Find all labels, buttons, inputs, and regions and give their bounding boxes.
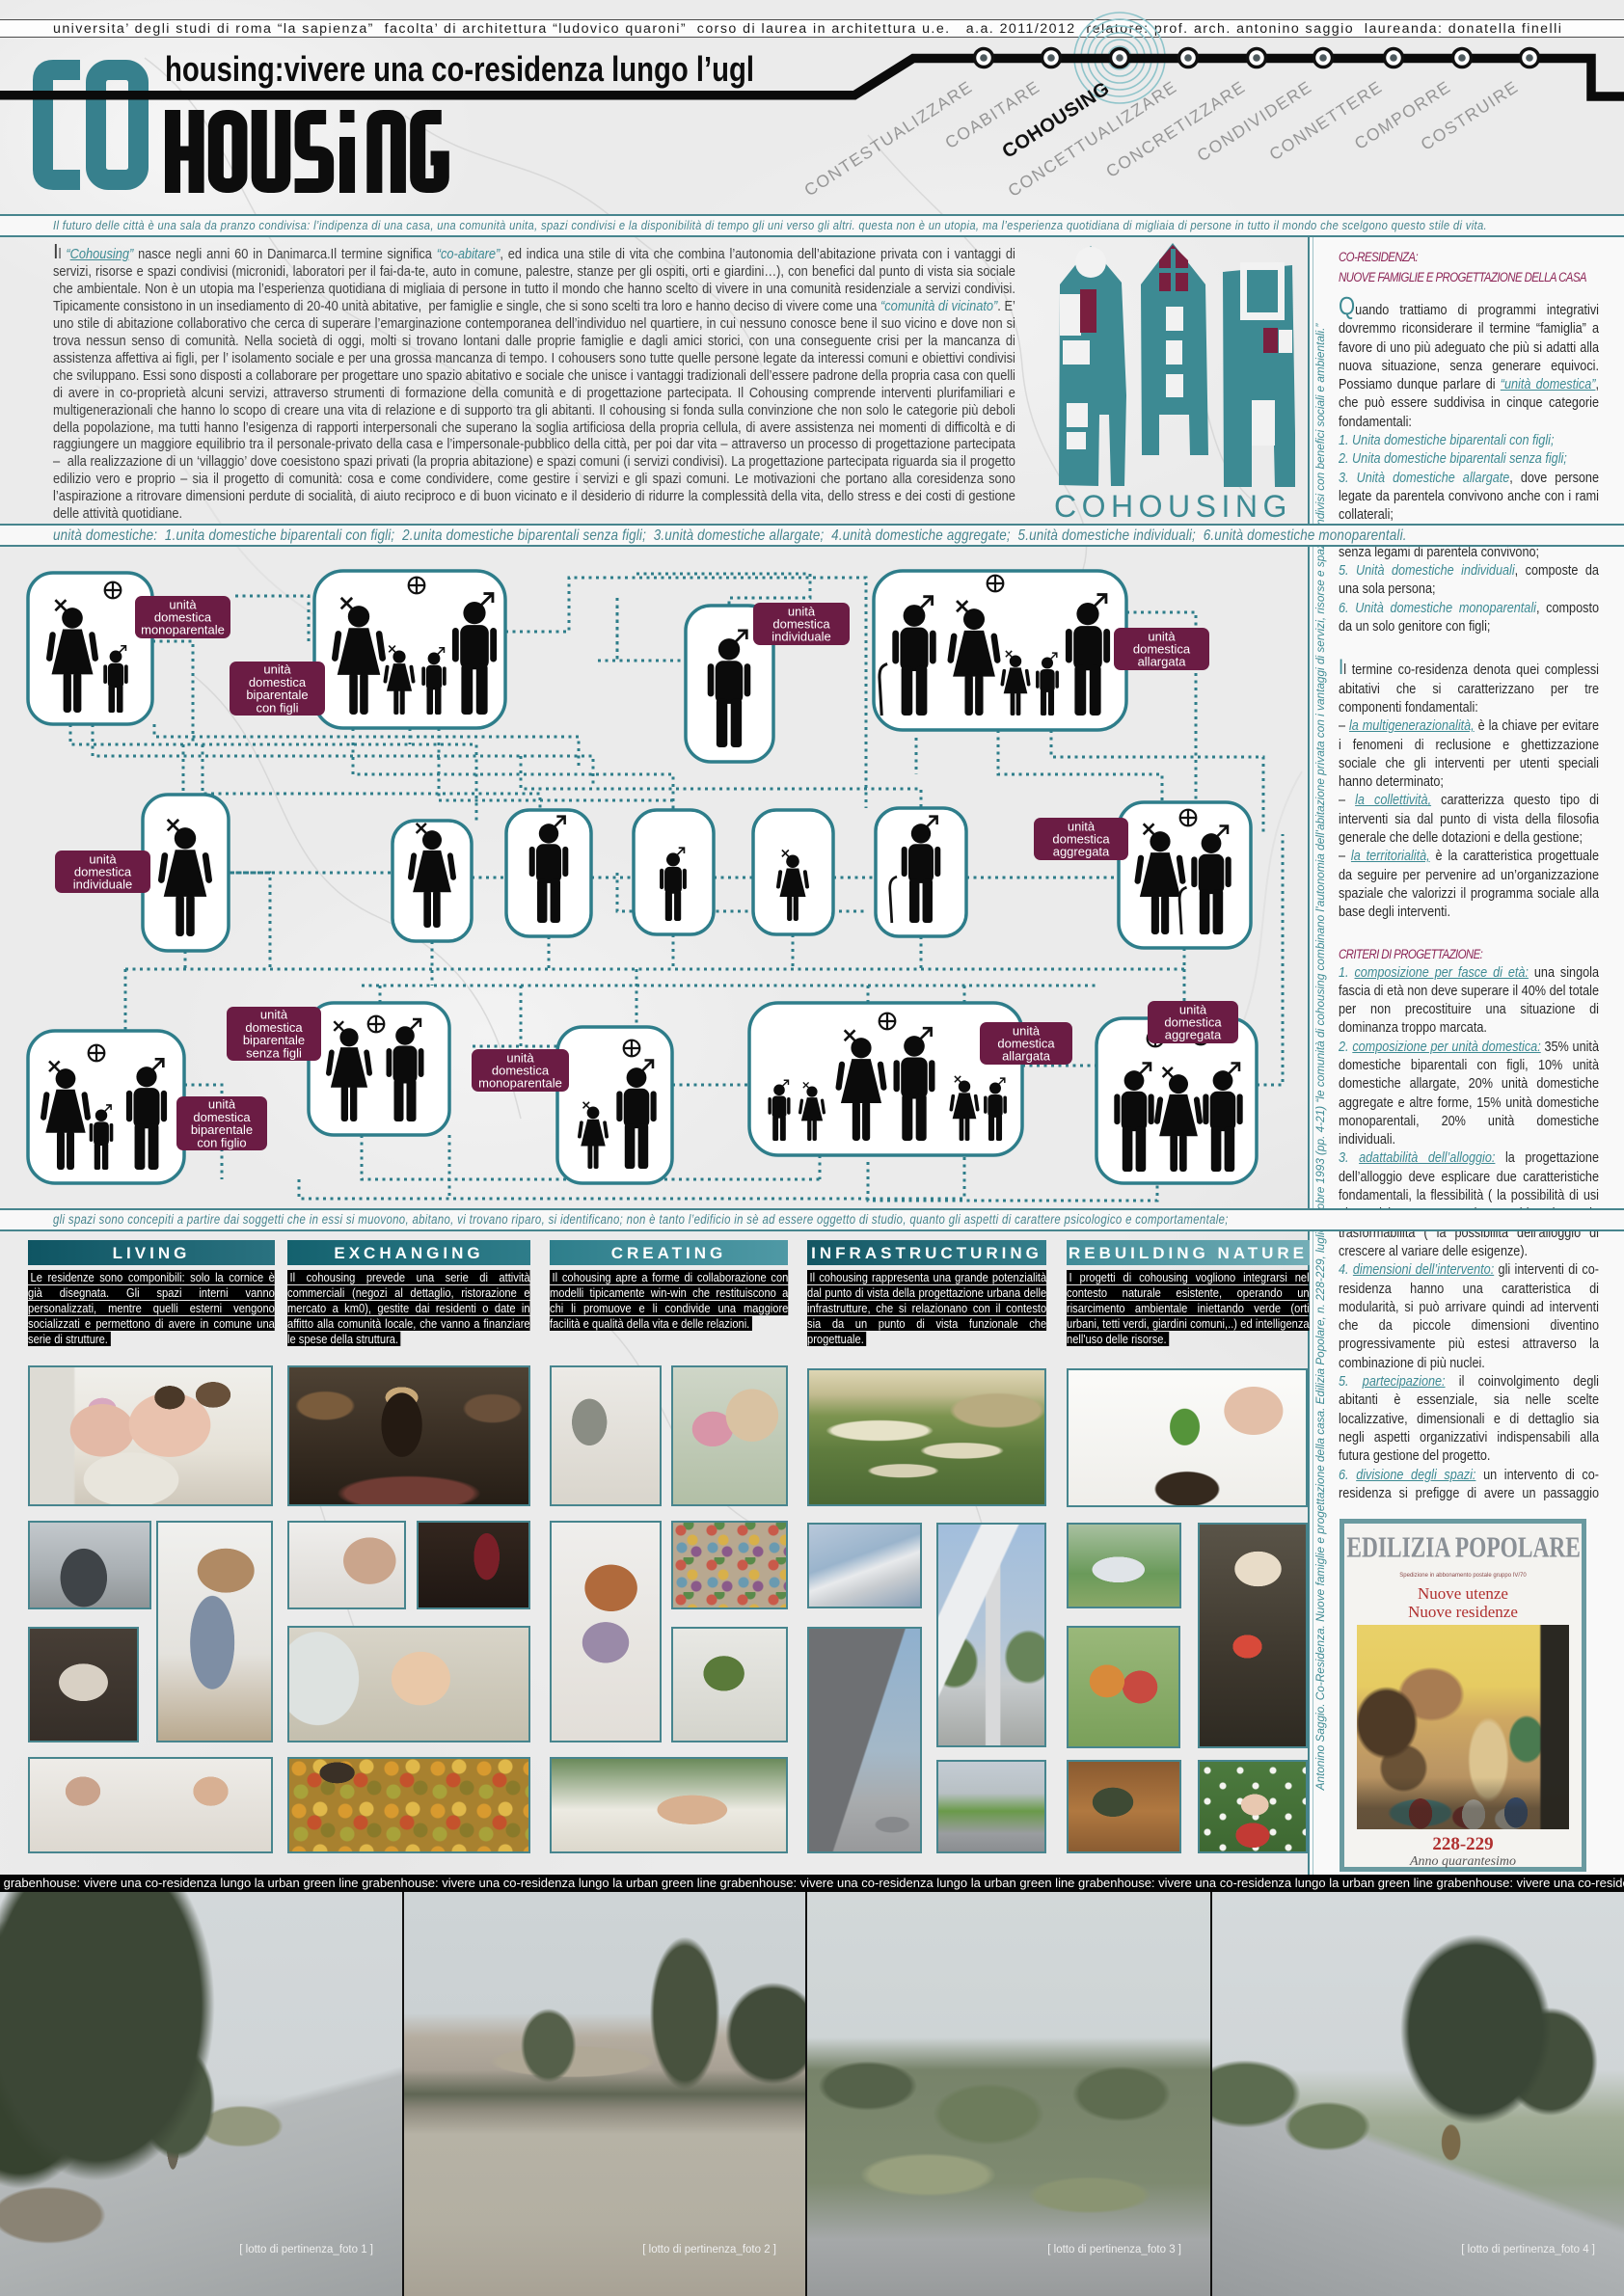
svg-text:CONDIVIDERE: CONDIVIDERE	[1194, 77, 1316, 166]
svg-text:con figlio: con figlio	[197, 1135, 246, 1149]
svg-text:COHOUSING: COHOUSING	[1054, 489, 1292, 524]
svg-text:con figli: con figli	[256, 700, 298, 715]
svg-text:allargata: allargata	[1002, 1049, 1051, 1064]
svg-text:monoparentale: monoparentale	[478, 1076, 562, 1091]
svg-text:housing:vivere una co-residenz: housing:vivere una co-residenza lungo l’…	[165, 49, 754, 89]
svg-text:aggregata: aggregata	[1165, 1028, 1222, 1042]
svg-text:senza figli: senza figli	[246, 1045, 302, 1060]
svg-text:individuale: individuale	[771, 630, 830, 644]
svg-text:monoparentale: monoparentale	[141, 623, 225, 637]
svg-text:allargata: allargata	[1138, 655, 1187, 669]
svg-text:individuale: individuale	[73, 878, 132, 892]
svg-text:aggregata: aggregata	[1053, 845, 1110, 859]
